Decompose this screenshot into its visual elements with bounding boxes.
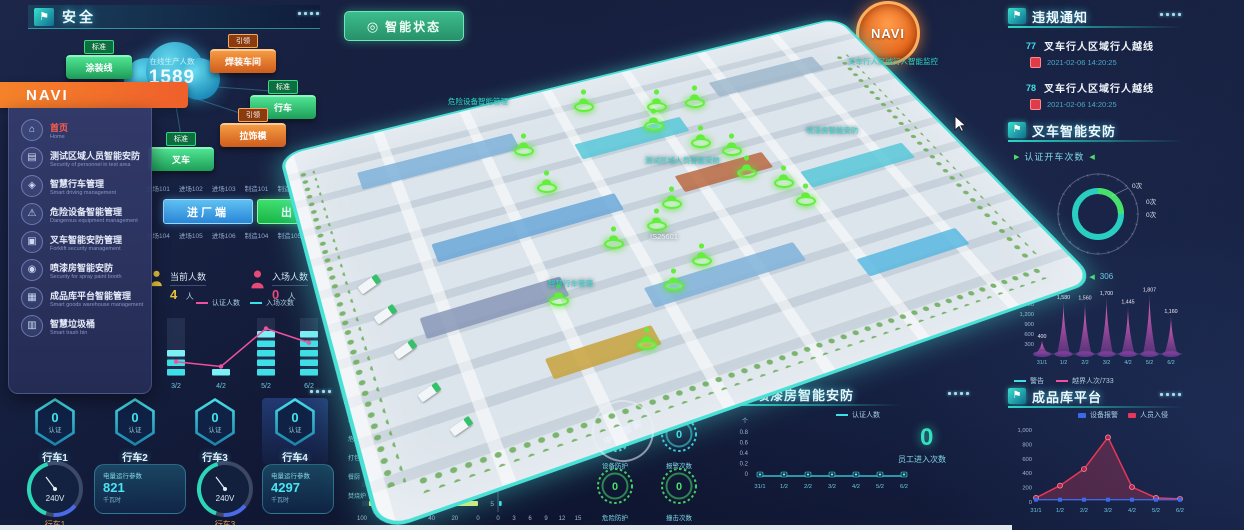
- marker-ring: [691, 138, 711, 148]
- entry-gate-button[interactable]: 进厂端: [163, 199, 253, 224]
- svg-text:1,000: 1,000: [1017, 428, 1032, 434]
- crane-icon: ◈: [21, 175, 43, 197]
- menu-item-label: 首页: [50, 121, 68, 134]
- notice-row-2: 2021-02-06 14:20:25: [1030, 99, 1186, 110]
- trash-left-chart: 未知垃圾危险垃圾打包垃圾餐厨焚烧炉100806040200: [346, 412, 484, 524]
- crane-cert-label: 认证: [49, 424, 62, 434]
- navi-logo-label: NAVI: [871, 26, 905, 41]
- svg-text:1,560: 1,560: [1078, 296, 1091, 302]
- gate-label[interactable]: 制造105: [277, 230, 301, 240]
- svg-text:20: 20: [451, 516, 458, 522]
- warehouse-icon: ▦: [21, 287, 43, 309]
- device-panel-header: ⚑ 点车设备: [545, 386, 625, 406]
- notice-time: 2021-02-06 14:20:25: [1047, 58, 1117, 67]
- map-area-label: IS25601: [650, 232, 678, 241]
- crane-cert-value: 0: [51, 411, 58, 424]
- line-badge-1: 标准涂装线: [66, 36, 132, 79]
- svg-text:40: 40: [428, 516, 435, 522]
- notice-id: 78: [1026, 83, 1036, 93]
- paint-big-value: 0: [920, 424, 933, 452]
- trash-right-chart: 1234503691215: [486, 412, 586, 524]
- svg-text:5: 5: [490, 501, 494, 508]
- svg-text:100: 100: [357, 516, 368, 522]
- svg-text:240V: 240V: [216, 494, 235, 503]
- menu-item-label: 成品库平台智能管理: [50, 289, 143, 302]
- svg-text:1,500: 1,500: [1019, 302, 1034, 308]
- crane-cert-label: 认证: [209, 424, 222, 434]
- notice-item[interactable]: 77叉车行人区域行人越线2021-02-06 14:20:25: [1026, 38, 1186, 68]
- svg-text:6/2: 6/2: [900, 484, 908, 490]
- badge-tag: 标准: [166, 132, 196, 146]
- paint-chart: 个0.80.60.40.2031/11/22/23/24/25/26/2: [734, 414, 914, 492]
- menu-item-sub: Smart goods warehouse management: [50, 302, 143, 308]
- gate-label-row-2: 进场104进场105进场106制造104制造105制造106: [146, 230, 334, 240]
- gate-label[interactable]: 制造106: [310, 230, 334, 240]
- svg-text:3/2: 3/2: [171, 383, 181, 390]
- crane-cert-label: 认证: [129, 424, 142, 434]
- svg-text:3: 3: [512, 516, 516, 522]
- badge-tag: 标准: [84, 40, 114, 54]
- forklift-donut-chart: 0次0次0次: [1040, 162, 1170, 266]
- svg-text:0次: 0次: [1132, 181, 1143, 190]
- svg-text:60: 60: [405, 516, 412, 522]
- marker-ring: [604, 239, 624, 249]
- map-person-marker[interactable]: [536, 169, 556, 191]
- menu-item-text: 智慧垃圾桶Smart trash bin: [50, 317, 95, 336]
- menu-item-text: 首页Home: [50, 121, 68, 140]
- svg-text:6: 6: [528, 516, 532, 522]
- svg-text:未知垃圾: 未知垃圾: [348, 416, 372, 424]
- sidebar-item-5[interactable]: ▣叉车智能安防管理Forklift security management: [9, 228, 151, 256]
- svg-text:0: 0: [476, 516, 480, 522]
- entry-chart: 3/24/25/26/2: [146, 306, 330, 394]
- menu-item-label: 测试区域人员智能安防: [50, 149, 140, 162]
- svg-text:5/2: 5/2: [1152, 508, 1160, 514]
- home-icon: ⌂: [21, 119, 43, 141]
- camera-icon: [1030, 99, 1041, 110]
- crane-gauge-1-info: 电量运行参数 821 千瓦时: [94, 464, 186, 514]
- smart-status-label: 智能状态: [385, 18, 441, 35]
- svg-text:2: 2: [490, 444, 494, 451]
- marker-ring: [574, 102, 594, 112]
- paint-panel-title: 喷漆房智能安防: [756, 385, 854, 404]
- device-stat-1: 0设备防护: [588, 414, 642, 470]
- svg-text:800: 800: [1022, 442, 1032, 448]
- play-icon: ▶: [1014, 153, 1019, 161]
- notices-panel-dots[interactable]: [1160, 13, 1181, 16]
- svg-text:240V: 240V: [46, 494, 65, 503]
- trash-panel-title: 智慧垃圾桶: [368, 383, 438, 402]
- svg-text:4: 4: [490, 482, 494, 489]
- flag-icon: ⚑: [545, 388, 563, 404]
- crane-badge-1: 0认证行车1: [22, 398, 88, 464]
- trash-panel-header: ⚑ 智慧垃圾桶: [344, 382, 438, 402]
- menu-item-text: 成品库平台智能管理Smart goods warehouse managemen…: [50, 289, 143, 308]
- badge-label: 焊装车间: [210, 49, 276, 73]
- marker-ring: [549, 296, 569, 306]
- navi-menu: ⌂首页Home▤测试区域人员智能安防Security of personnel …: [8, 108, 152, 394]
- map-person-marker[interactable]: [773, 164, 793, 186]
- map-person-marker[interactable]: [603, 225, 623, 247]
- flag-icon: ⚑: [1008, 8, 1026, 24]
- sidebar-item-4[interactable]: ⚠危险设备智能管理Dangerous equipment management: [9, 200, 151, 228]
- flag-icon: ⚑: [732, 386, 750, 402]
- sidebar-item-3[interactable]: ◈智慧行车管理Smart driving management: [9, 172, 151, 200]
- crane-gauge-1: 240V: [24, 458, 86, 525]
- warehouse-chart: 1,000800600400200031/11/22/23/24/25/26/2: [1008, 420, 1186, 526]
- paint-panel-header: ⚑ 喷漆房智能安防: [732, 384, 854, 404]
- badge-tag: 标准: [268, 80, 298, 94]
- map-person-marker[interactable]: [636, 326, 656, 348]
- svg-text:餐厨: 餐厨: [348, 473, 360, 481]
- svg-text:9: 9: [544, 516, 548, 522]
- device-stat-label: 撞击次数: [652, 512, 706, 522]
- map-person-marker[interactable]: [691, 242, 711, 264]
- device-panel-title: 点车设备: [569, 387, 625, 406]
- map-person-marker[interactable]: [646, 207, 666, 229]
- crane-name: 行车3: [182, 449, 248, 464]
- svg-text:80: 80: [382, 516, 389, 522]
- svg-text:600: 600: [1022, 457, 1032, 463]
- menu-item-label: 智慧行车管理: [50, 177, 116, 190]
- svg-text:打包垃圾: 打包垃圾: [348, 454, 372, 462]
- svg-text:6/2: 6/2: [304, 383, 314, 390]
- menu-item-label: 喷漆房智能安防: [50, 261, 122, 274]
- sidebar-item-7[interactable]: ▦成品库平台智能管理Smart goods warehouse manageme…: [9, 284, 151, 312]
- device-stat-label: 危险防护: [588, 512, 642, 522]
- sidebar-item-2[interactable]: ▤测试区域人员智能安防Security of personnel in test…: [9, 144, 151, 172]
- svg-text:31/1: 31/1: [754, 484, 765, 490]
- mouse-cursor: [953, 115, 967, 133]
- warehouse-panel-dots[interactable]: [1160, 393, 1181, 396]
- play-icon: ▶: [1014, 273, 1019, 281]
- crane-gauge-2-info: 电量运行参数 4297 千瓦时: [262, 464, 334, 514]
- marker-ring: [537, 183, 557, 193]
- menu-item-text: 测试区域人员智能安防Security of personnel in test …: [50, 149, 140, 168]
- hexagon-icon: 0认证: [33, 398, 77, 446]
- notice-row-1: 78叉车行人区域行人越线: [1026, 80, 1186, 95]
- paint-panel-dots[interactable]: [948, 392, 969, 395]
- menu-item-sub: Security for spray paint booth: [50, 274, 122, 280]
- crane-cert-value: 0: [211, 411, 218, 424]
- notice-row-1: 77叉车行人区域行人越线: [1026, 38, 1186, 53]
- svg-text:5/2: 5/2: [1146, 360, 1153, 366]
- crane-name: 行车2: [102, 449, 168, 464]
- notices-panel-header: ⚑ 违规通知: [1008, 6, 1088, 26]
- gate-label[interactable]: 进场106: [212, 230, 236, 240]
- warehouse-legend: 设备报警 人员入侵: [1078, 410, 1168, 420]
- crane-badge-2: 0认证行车2: [102, 398, 168, 464]
- svg-text:0.4: 0.4: [740, 451, 749, 457]
- map-area-label: 危险设备智能管理: [448, 96, 508, 107]
- svg-text:0: 0: [745, 472, 749, 478]
- menu-item-text: 智慧行车管理Smart driving management: [50, 177, 116, 196]
- marker-ring: [514, 146, 534, 156]
- violation-count: 306: [1100, 272, 1113, 281]
- badge-tag: 引领: [238, 108, 268, 122]
- top-header: ⚑ 安全: [28, 5, 320, 29]
- svg-text:1,800: 1,800: [1019, 292, 1034, 298]
- svg-text:300: 300: [1024, 342, 1034, 348]
- marker-ring: [685, 98, 705, 108]
- map-person-marker[interactable]: [721, 132, 741, 154]
- dashboard: ⚑ 安全 ◎ 智能状态 NAVI 在线生产人数 1589 进场101进场102进…: [0, 0, 1244, 530]
- marker-ring: [774, 178, 794, 188]
- hexagon-icon: 0认证: [193, 398, 237, 446]
- notice-time: 2021-02-06 14:20:25: [1047, 100, 1117, 109]
- svg-text:400: 400: [1022, 471, 1032, 477]
- map-person-marker[interactable]: [690, 124, 710, 146]
- svg-text:4/2: 4/2: [852, 484, 860, 490]
- svg-text:0.8: 0.8: [740, 430, 749, 436]
- svg-text:6/2: 6/2: [1176, 508, 1184, 514]
- svg-text:0: 0: [496, 516, 500, 522]
- warehouse-panel-header: ⚑ 成品库平台: [1008, 386, 1102, 406]
- map-area-label: 喷漆房智能安防: [806, 125, 859, 136]
- menu-item-label: 智慧垃圾桶: [50, 317, 95, 330]
- menu-item-sub: Forklift security management: [50, 246, 122, 252]
- svg-text:4/2: 4/2: [1124, 360, 1131, 366]
- map-person-marker[interactable]: [573, 88, 593, 110]
- svg-text:个: 个: [742, 418, 748, 425]
- flag-icon: ⚑: [34, 8, 54, 26]
- map-person-marker[interactable]: [663, 267, 683, 289]
- marker-ring: [644, 121, 664, 131]
- crane-name: 行车4: [262, 449, 328, 464]
- menu-item-sub: Security of personnel in test area: [50, 162, 140, 168]
- svg-text:6/2: 6/2: [1167, 360, 1174, 366]
- svg-text:1,807: 1,807: [1143, 287, 1156, 293]
- marker-ring: [692, 256, 712, 266]
- svg-text:3/2: 3/2: [1104, 508, 1112, 514]
- svg-text:1/2: 1/2: [1060, 360, 1067, 366]
- svg-text:200: 200: [1022, 486, 1032, 492]
- map-person-marker[interactable]: [736, 154, 756, 176]
- menu-item-sub: Smart trash bin: [50, 330, 95, 336]
- svg-text:焚烧炉: 焚烧炉: [348, 492, 366, 500]
- map-person-marker[interactable]: [795, 182, 815, 204]
- svg-text:4/2: 4/2: [216, 383, 226, 390]
- line-badge-2: 引领焊装车间: [210, 30, 276, 73]
- device-stat-4: 0撞击次数: [652, 466, 706, 522]
- menu-item-sub: Dangerous equipment management: [50, 218, 138, 224]
- crane-cert-label: 认证: [289, 424, 302, 434]
- svg-text:5/2: 5/2: [876, 484, 884, 490]
- device-stat-3: 0危险防护: [588, 466, 642, 522]
- spray-icon: ◉: [21, 259, 43, 281]
- line-badge-4: 引领拉饰模: [220, 104, 286, 147]
- badge-label: 叉车: [148, 147, 214, 171]
- menu-item-text: 危险设备智能管理Dangerous equipment management: [50, 205, 138, 224]
- notice-item[interactable]: 78叉车行人区域行人越线2021-02-06 14:20:25: [1026, 80, 1186, 110]
- camera-icon: [1030, 57, 1041, 68]
- map-person-marker[interactable]: [684, 84, 704, 106]
- svg-text:1/2: 1/2: [1056, 508, 1064, 514]
- current-people-value: 4: [170, 287, 177, 302]
- map-person-marker[interactable]: [548, 282, 568, 304]
- svg-text:2/2: 2/2: [804, 484, 812, 490]
- flag-icon: ⚑: [1008, 122, 1026, 138]
- navi-menu-header: NAVI: [0, 82, 188, 108]
- svg-text:4/2: 4/2: [1128, 508, 1136, 514]
- svg-text:0: 0: [612, 429, 618, 441]
- menu-item-label: 危险设备智能管理: [50, 205, 138, 218]
- marker-ring: [637, 340, 657, 350]
- menu-item-text: 叉车智能安防管理Forklift security management: [50, 233, 122, 252]
- smart-status-button[interactable]: ◎ 智能状态: [344, 11, 464, 41]
- menu-item-sub: Home: [50, 134, 68, 140]
- notice-text: 叉车行人区域行人越线: [1044, 38, 1154, 53]
- svg-text:1,580: 1,580: [1057, 295, 1070, 301]
- svg-text:15: 15: [575, 516, 582, 522]
- marker-ring: [647, 221, 667, 231]
- exit-gate-button[interactable]: 出厂端: [257, 199, 347, 224]
- badge-label: 涂装线: [66, 55, 132, 79]
- svg-text:3/2: 3/2: [1103, 360, 1110, 366]
- header-menu-dots[interactable]: [298, 12, 319, 15]
- badge-tag: 引领: [228, 34, 258, 48]
- svg-text:2/2: 2/2: [1081, 360, 1088, 366]
- svg-text:12: 12: [559, 516, 566, 522]
- target-icon: ◎: [367, 20, 378, 33]
- svg-text:0: 0: [612, 481, 618, 493]
- navi-logo-badge[interactable]: NAVI: [856, 1, 920, 65]
- svg-text:1/2: 1/2: [780, 484, 788, 490]
- svg-text:31/1: 31/1: [1030, 508, 1041, 514]
- svg-text:2/2: 2/2: [1080, 508, 1088, 514]
- svg-text:0: 0: [1029, 500, 1032, 506]
- svg-text:0: 0: [676, 429, 682, 441]
- forklift-panel-header: ⚑ 叉车智能安防: [1008, 120, 1116, 140]
- marker-ring: [664, 281, 684, 291]
- svg-text:1,445: 1,445: [1121, 299, 1134, 305]
- svg-text:31/1: 31/1: [1037, 360, 1047, 366]
- bottom-strip: [0, 525, 1012, 530]
- map-person-marker[interactable]: [513, 132, 533, 154]
- svg-text:3: 3: [490, 463, 494, 470]
- crane-cert-value: 0: [291, 411, 298, 424]
- marker-ring: [796, 196, 816, 206]
- svg-text:0.6: 0.6: [740, 441, 749, 447]
- forklift-panel-title: 叉车智能安防: [1032, 121, 1116, 140]
- device-stat-2: 0报警次数: [652, 414, 706, 470]
- svg-text:900: 900: [1024, 322, 1034, 328]
- menu-item-text: 喷漆房智能安防Security for spray paint booth: [50, 261, 122, 280]
- map-area-label: 测试区域人员智能安防: [645, 155, 720, 166]
- violation-chart: 1,8001,5001,20090060030040031/11,5801/21…: [1008, 282, 1186, 376]
- notices-panel-title: 违规通知: [1032, 7, 1088, 26]
- trash-icon: ▥: [21, 315, 43, 337]
- marker-ring: [737, 168, 757, 178]
- svg-text:1,700: 1,700: [1100, 291, 1113, 297]
- notice-id: 77: [1026, 41, 1036, 51]
- line-badge-5: 标准叉车: [148, 128, 214, 171]
- menu-item-label: 叉车智能安防管理: [50, 233, 122, 246]
- flag-icon: ⚑: [344, 384, 362, 400]
- svg-text:0次: 0次: [1146, 197, 1157, 206]
- map-person-marker[interactable]: [661, 185, 681, 207]
- crane-gauge-2: 240V: [194, 458, 256, 525]
- gate-label[interactable]: 进场105: [179, 230, 203, 240]
- forklift-icon: ▣: [21, 231, 43, 253]
- svg-text:400: 400: [1038, 334, 1047, 340]
- crane-badge-4: 0认证行车4: [262, 398, 328, 464]
- violation-legend: 警告 越界人次/733: [1014, 376, 1114, 386]
- warehouse-panel-title: 成品库平台: [1032, 387, 1102, 406]
- map-person-marker[interactable]: [643, 107, 663, 129]
- page-title: 安全: [62, 7, 96, 27]
- gate-label[interactable]: 制造104: [245, 230, 269, 240]
- badge-label: 拉饰模: [220, 123, 286, 147]
- svg-text:0次: 0次: [1146, 210, 1157, 219]
- flag-icon: ⚑: [1008, 388, 1026, 404]
- hexagon-icon: 0认证: [273, 398, 317, 446]
- svg-text:危险垃圾: 危险垃圾: [348, 435, 372, 443]
- svg-text:1,200: 1,200: [1019, 312, 1034, 318]
- menu-item-sub: Smart driving management: [50, 190, 116, 196]
- svg-text:3/2: 3/2: [828, 484, 836, 490]
- sidebar-item-6[interactable]: ◉喷漆房智能安防Security for spray paint booth: [9, 256, 151, 284]
- sidebar-item-1[interactable]: ⌂首页Home: [9, 116, 151, 144]
- svg-text:0.2: 0.2: [740, 462, 749, 468]
- notice-text: 叉车行人区域行人越线: [1044, 80, 1154, 95]
- crane-cert-value: 0: [131, 411, 138, 424]
- hexagon-icon: 0认证: [113, 398, 157, 446]
- notice-row-2: 2021-02-06 14:20:25: [1030, 57, 1186, 68]
- svg-text:0: 0: [676, 481, 682, 493]
- svg-text:600: 600: [1024, 332, 1034, 338]
- play-back-icon: ◀: [1089, 273, 1094, 281]
- crane-name: 行车1: [22, 449, 88, 464]
- svg-text:1,160: 1,160: [1164, 309, 1177, 315]
- test-area-icon: ▤: [21, 147, 43, 169]
- sidebar-item-8[interactable]: ▥智慧垃圾桶Smart trash bin: [9, 312, 151, 340]
- warning-icon: ⚠: [21, 203, 43, 225]
- play-back-icon: ◀: [1089, 153, 1094, 161]
- svg-text:5/2: 5/2: [261, 383, 271, 390]
- svg-text:1: 1: [490, 425, 494, 432]
- crane-badge-3: 0认证行车3: [182, 398, 248, 464]
- person-icon: [250, 270, 265, 289]
